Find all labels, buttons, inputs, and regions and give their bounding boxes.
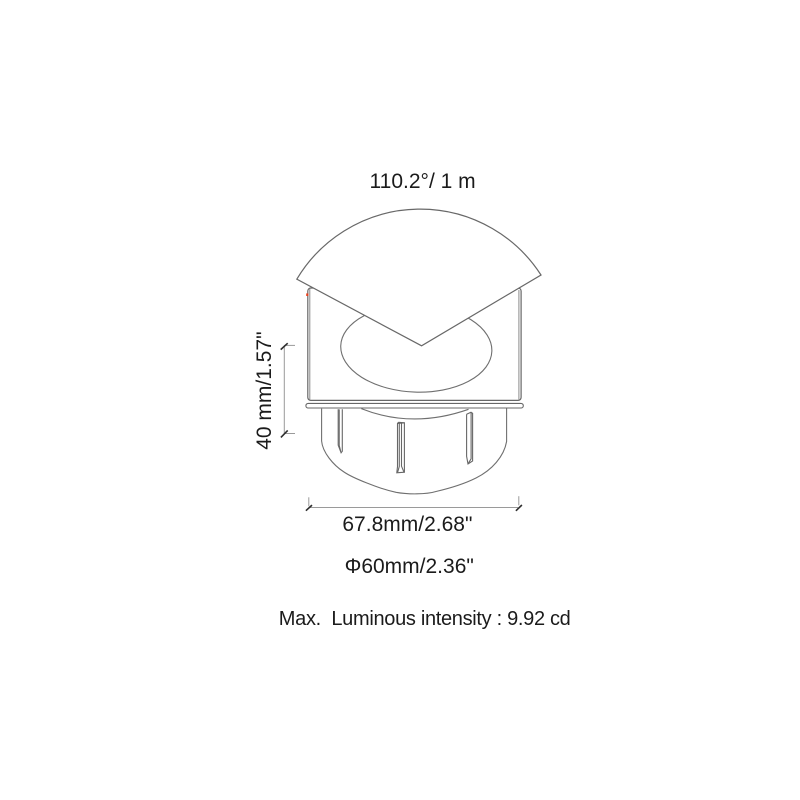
svg-text:Max. Luminous intensity : 9.9: Max. Luminous intensity : 9.92 cd (279, 608, 571, 630)
svg-text:110.2°/ 1 m: 110.2°/ 1 m (370, 170, 476, 193)
svg-text:40 mm/1.57": 40 mm/1.57" (253, 331, 276, 449)
svg-text:Φ60mm/2.36": Φ60mm/2.36" (345, 555, 474, 578)
svg-text:67.8mm/2.68": 67.8mm/2.68" (342, 513, 472, 536)
